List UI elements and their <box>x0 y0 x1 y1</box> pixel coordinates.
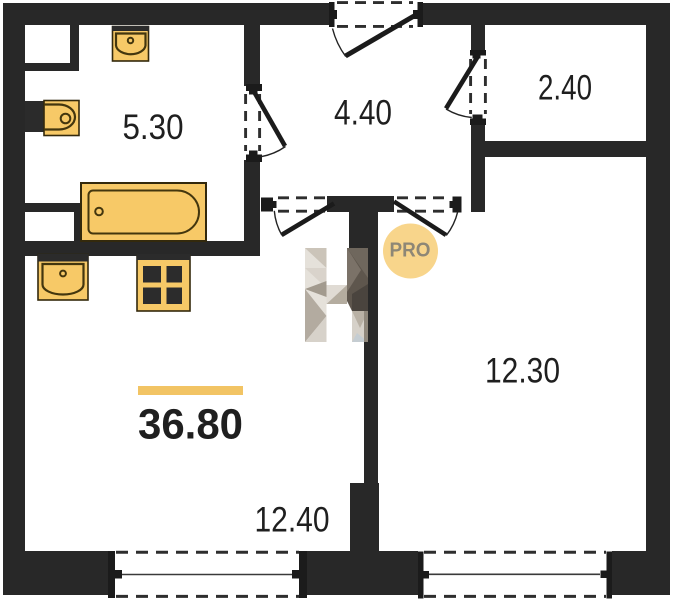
svg-text:36.80: 36.80 <box>138 401 243 449</box>
svg-text:2.40: 2.40 <box>538 69 592 108</box>
svg-text:5.30: 5.30 <box>123 108 184 147</box>
svg-text:12.30: 12.30 <box>485 352 560 391</box>
svg-text:4.40: 4.40 <box>334 94 392 133</box>
svg-text:12.40: 12.40 <box>255 501 330 540</box>
svg-text:PRO: PRO <box>390 239 431 262</box>
